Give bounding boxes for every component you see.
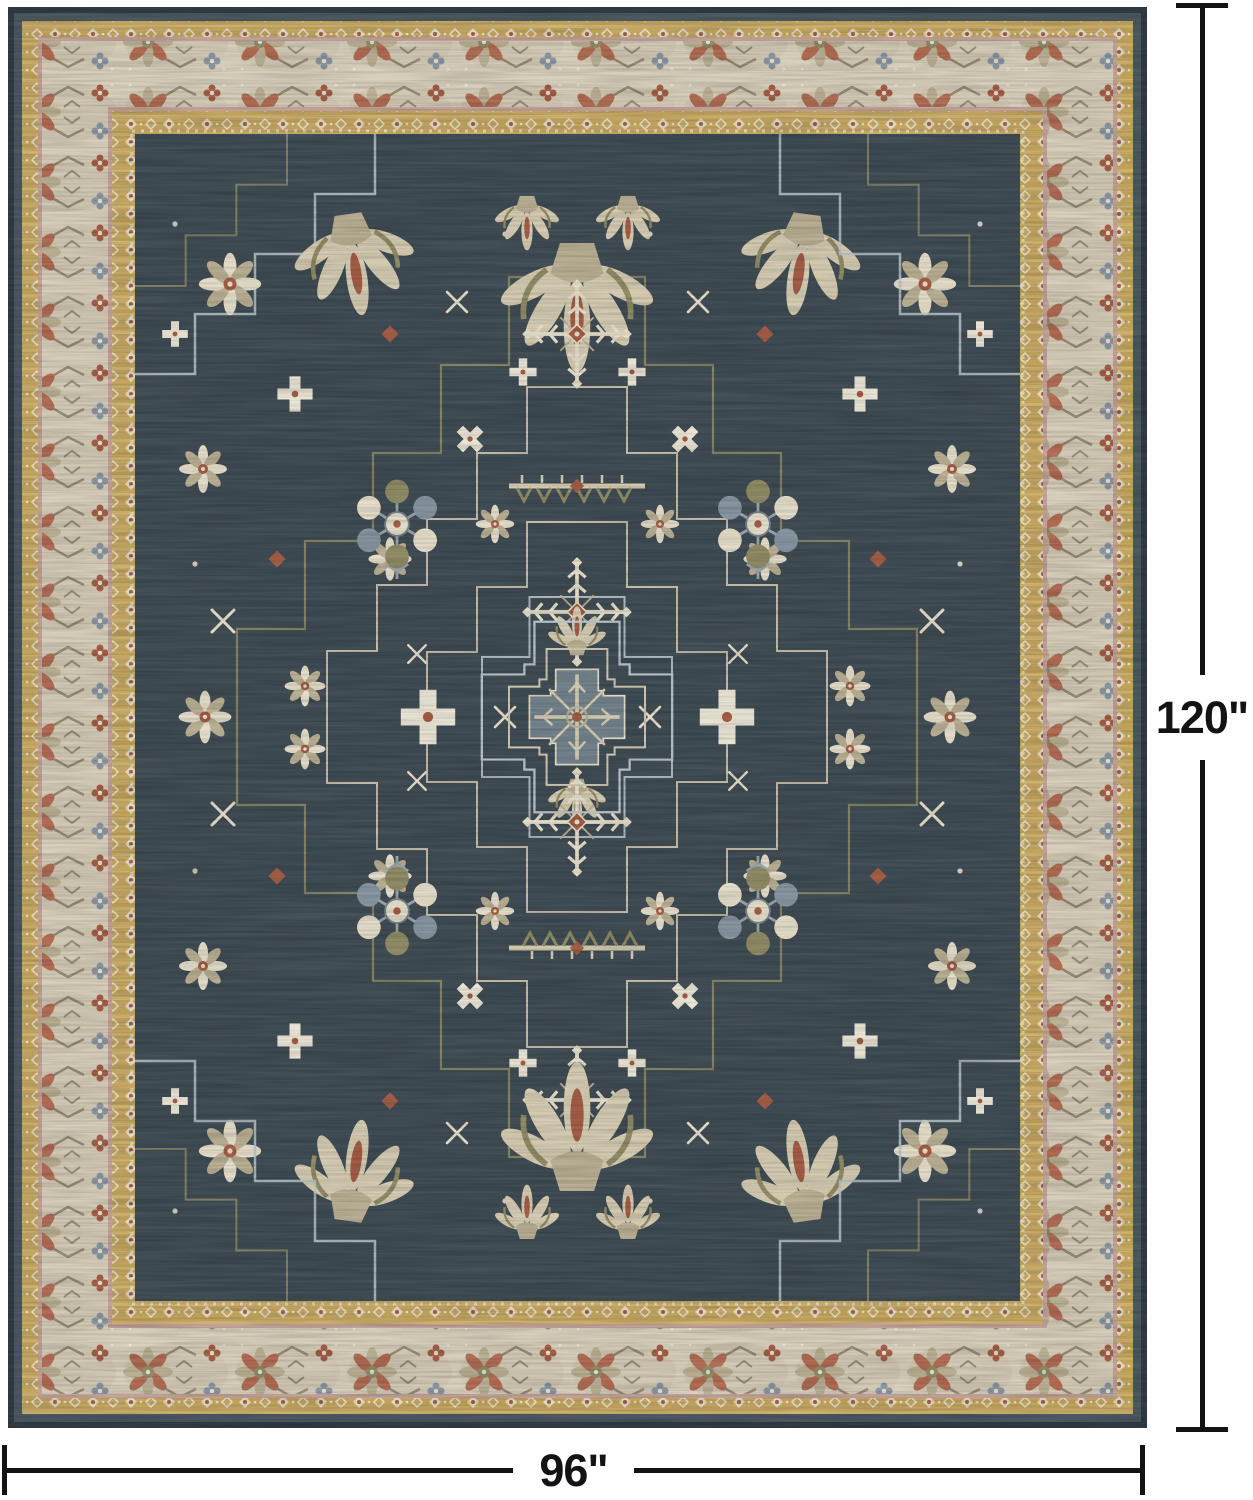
product-image: 120" 96" <box>0 0 1253 1500</box>
dimension-cap-right <box>1140 1445 1145 1495</box>
rug-artwork <box>8 7 1147 1428</box>
width-dimension-line: 96" <box>2 1445 1145 1495</box>
rug-image <box>8 7 1147 1428</box>
dimension-segment <box>7 1468 513 1473</box>
height-dimension-label: 120" <box>1156 675 1248 760</box>
height-dimension-line: 120" <box>1152 3 1252 1432</box>
width-dimension-label: 96" <box>513 1448 633 1493</box>
dimension-segment <box>1200 760 1205 1427</box>
dimension-cap-bottom <box>1176 1427 1228 1432</box>
dimension-segment <box>1200 8 1205 675</box>
dimension-segment <box>634 1468 1140 1473</box>
